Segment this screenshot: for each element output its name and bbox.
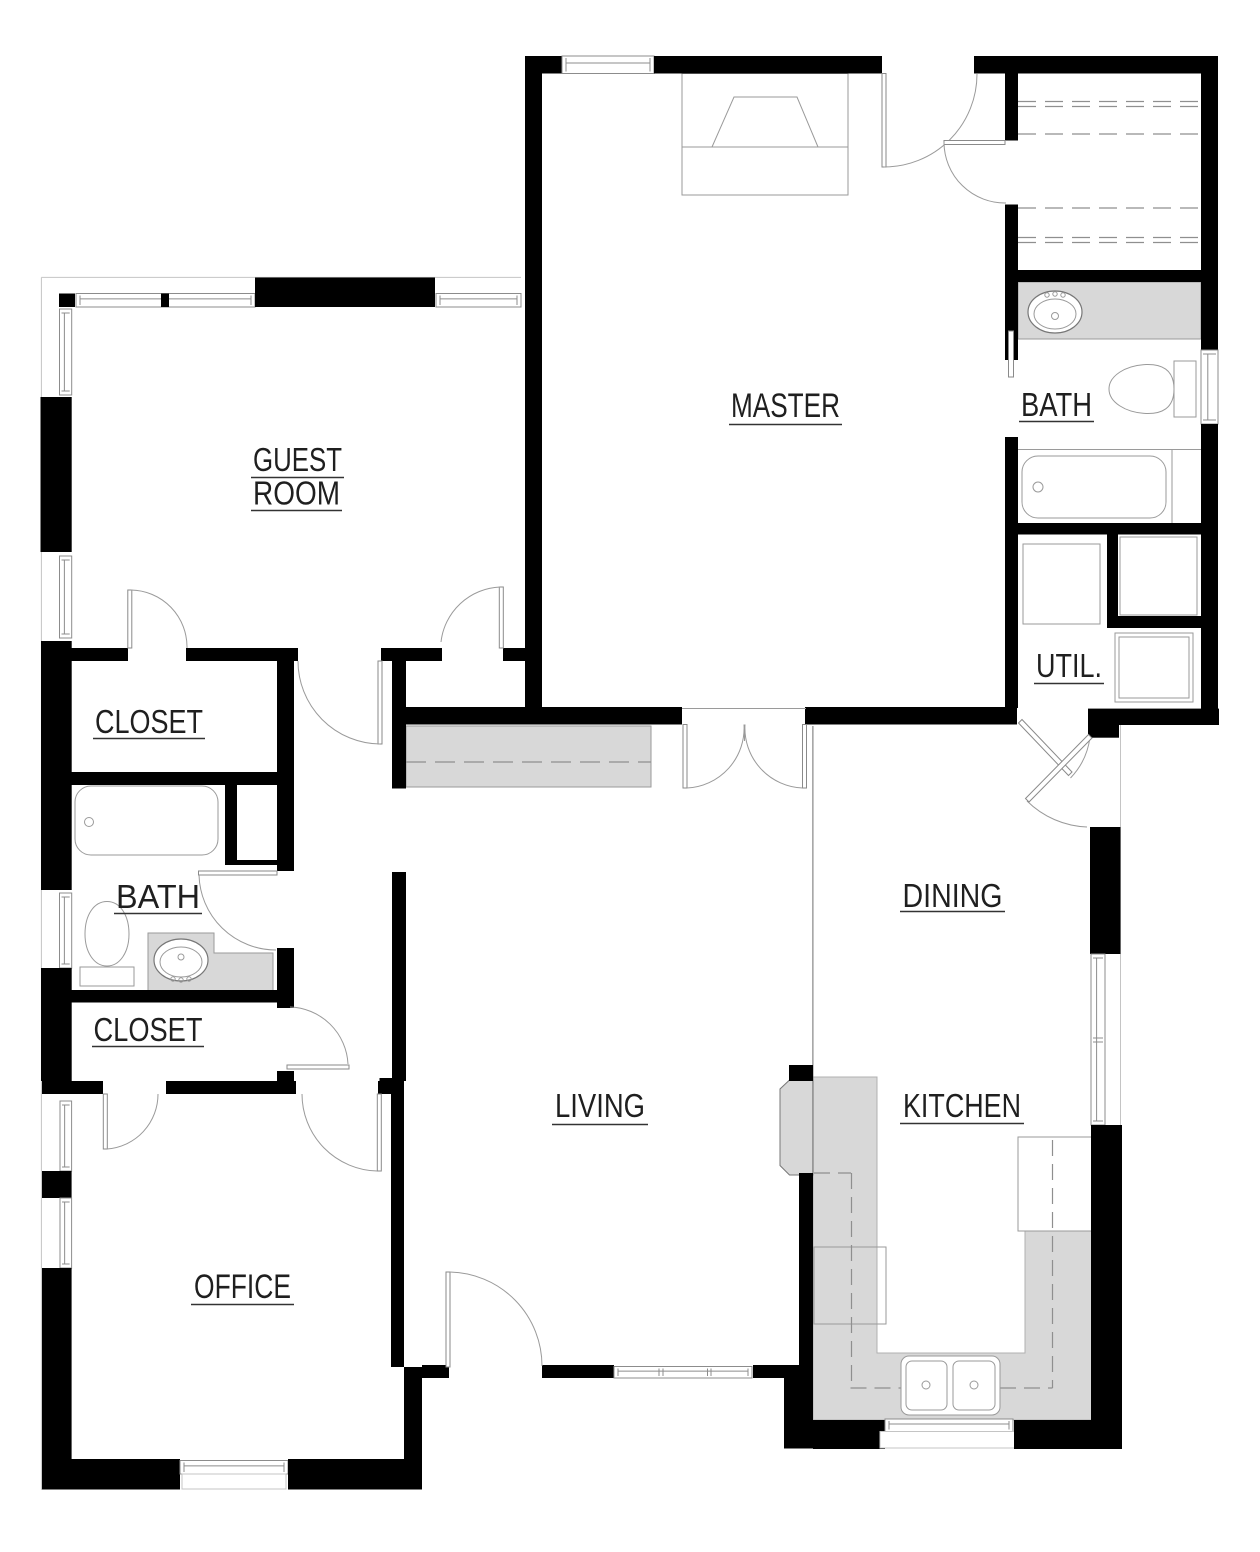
svg-text:OFFICE: OFFICE — [194, 1268, 291, 1306]
svg-text:ROOM: ROOM — [253, 475, 340, 512]
svg-text:CLOSET: CLOSET — [95, 703, 203, 740]
svg-text:GUEST: GUEST — [253, 441, 342, 478]
svg-text:LIVING: LIVING — [555, 1087, 645, 1124]
svg-text:DINING: DINING — [903, 877, 1003, 914]
svg-text:BATH: BATH — [116, 878, 200, 915]
svg-text:MASTER: MASTER — [731, 387, 840, 425]
svg-text:KITCHEN: KITCHEN — [903, 1087, 1021, 1124]
svg-text:BATH: BATH — [1021, 386, 1092, 423]
svg-text:CLOSET: CLOSET — [94, 1011, 203, 1048]
svg-text:UTIL.: UTIL. — [1036, 647, 1102, 684]
